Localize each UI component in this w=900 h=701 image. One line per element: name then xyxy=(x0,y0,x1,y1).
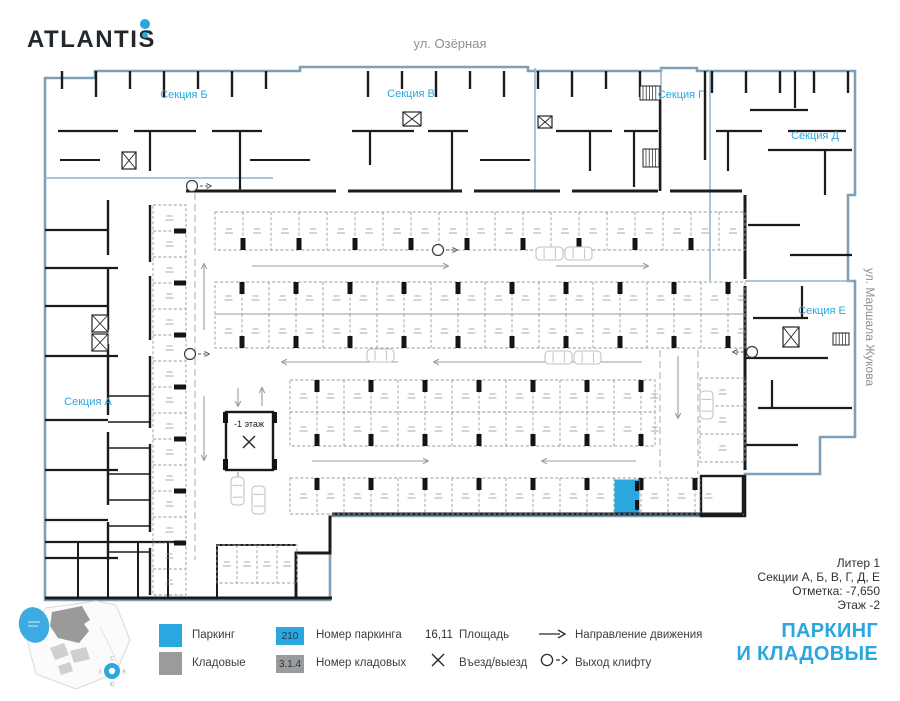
section-label-b: Секция Б xyxy=(160,89,208,101)
info-floor: Этаж -2 xyxy=(757,598,880,612)
elevator-shaft-icon xyxy=(122,152,136,169)
elevator-shaft-icon xyxy=(538,116,552,128)
elevator-shaft-icon xyxy=(92,315,108,332)
mini-site-map: С Ю З В xyxy=(16,596,141,698)
drawing-info: Литер 1 Секции А, Б, В, Г, Д, Е Отметка:… xyxy=(757,556,880,612)
compass-n: С xyxy=(110,656,114,662)
section-label-a: Секция А xyxy=(64,396,112,408)
legend-parking-number-badge: 210 xyxy=(276,627,304,645)
compass-w: З xyxy=(98,670,101,676)
elevator-shaft-icon xyxy=(92,334,108,351)
stairs-icon xyxy=(643,149,659,167)
compass-s: Ю xyxy=(109,682,114,688)
car-icon xyxy=(545,351,572,364)
elevator-shaft-icon xyxy=(783,327,799,347)
car-icon xyxy=(700,391,713,419)
page-title: ПАРКИНГ И КЛАДОВЫЕ xyxy=(736,620,878,666)
compass-hole xyxy=(109,668,115,674)
elevator-shaft-icon xyxy=(403,112,421,126)
legend-area-value: 16,11 xyxy=(425,629,453,641)
building-outline xyxy=(45,67,855,600)
column xyxy=(635,481,639,491)
car-icon xyxy=(367,349,394,362)
title-line1: ПАРКИНГ xyxy=(736,620,878,643)
legend-area-label: Площадь xyxy=(459,629,509,641)
car-icon xyxy=(252,486,265,514)
car-icon xyxy=(231,477,244,505)
legend-storage-label: Кладовые xyxy=(192,657,246,669)
info-sections: Секции А, Б, В, Г, Д, Е xyxy=(757,570,880,584)
car-icon xyxy=(536,247,563,260)
info-mark: Отметка: -7,650 xyxy=(757,584,880,598)
page: ATLANTIS ул. Озёрная ул. Маршала Жукова … xyxy=(0,0,900,701)
legend-parking-label: Паркинг xyxy=(192,629,235,641)
direction-arrow-icon xyxy=(538,628,568,640)
ramp-label: -1 этаж xyxy=(234,419,264,429)
info-liter: Литер 1 xyxy=(757,556,880,570)
section-label-g: Секция Г xyxy=(658,89,704,101)
legend-entry-label: Въезд/выезд xyxy=(459,657,527,669)
title-line2: И КЛАДОВЫЕ xyxy=(736,643,878,666)
legend-lift-exit-label: Выход клифту xyxy=(575,657,651,669)
compass-e: В xyxy=(122,670,126,676)
stairs-icon xyxy=(833,333,849,345)
legend-storage-swatch xyxy=(159,652,182,675)
section-label-e: Секция Е xyxy=(798,305,846,317)
car-icon xyxy=(565,247,592,260)
legend-storage-number-badge: 3.1.4 xyxy=(276,655,304,673)
car-icon xyxy=(574,351,601,364)
column xyxy=(635,500,639,510)
section-label-d: Секция Д xyxy=(791,130,839,142)
legend-storage-number-label: Номер кладовых xyxy=(316,657,406,669)
legend-direction-label: Направление движения xyxy=(575,629,702,641)
entry-exit-icon xyxy=(431,653,445,667)
lift-exit-icon xyxy=(539,652,571,668)
legend-parking-number-label: Номер паркинга xyxy=(316,629,402,641)
legend-parking-swatch xyxy=(159,624,182,647)
section-label-v: Секция В xyxy=(387,88,435,100)
